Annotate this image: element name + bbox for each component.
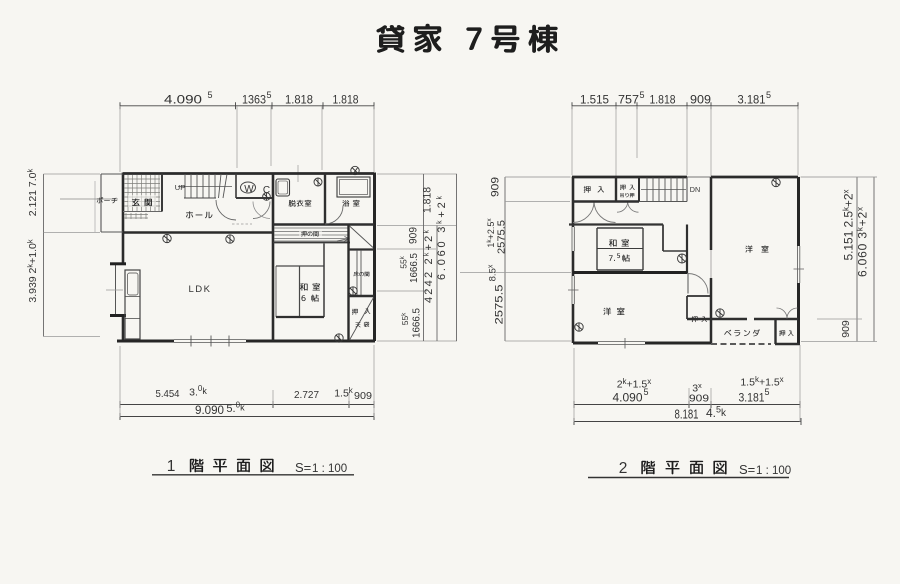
svg-text:909: 909 <box>690 93 711 107</box>
svg-text:1.818: 1.818 <box>422 187 434 213</box>
svg-text:1 : 100: 1 : 100 <box>312 463 347 475</box>
svg-text:5: 5 <box>266 90 271 100</box>
svg-text:3.939 2k+1.0k: 3.939 2k+1.0k <box>26 239 40 303</box>
svg-text:4.090: 4.090 <box>164 93 202 107</box>
svg-text:1.818: 1.818 <box>333 93 359 107</box>
svg-text:8.181: 8.181 <box>675 408 699 422</box>
svg-text:909: 909 <box>490 177 502 197</box>
svg-text:909: 909 <box>354 390 372 402</box>
svg-text:909: 909 <box>840 320 852 338</box>
svg-text:5: 5 <box>639 90 644 100</box>
svg-text:5.454: 5.454 <box>156 388 180 400</box>
svg-text:757: 757 <box>618 93 639 107</box>
svg-text:5: 5 <box>643 387 648 397</box>
svg-text:W: W <box>244 184 254 195</box>
svg-text:1.818: 1.818 <box>285 93 313 107</box>
svg-text:3.181: 3.181 <box>738 93 766 107</box>
svg-text:1.5k+1.5x: 1.5k+1.5x <box>740 375 783 389</box>
svg-text:909: 909 <box>408 227 420 244</box>
svg-text:2575.5: 2575.5 <box>494 285 506 325</box>
svg-text:5: 5 <box>766 90 771 100</box>
svg-text:1k+2.5x: 1k+2.5x <box>486 218 496 248</box>
svg-text:2.121 7.0k: 2.121 7.0k <box>26 168 40 216</box>
svg-text:1.818: 1.818 <box>650 93 676 107</box>
svg-text:DN: DN <box>690 185 700 194</box>
svg-text:4.090: 4.090 <box>613 391 643 405</box>
svg-text:6.060 3k+2x: 6.060 3k+2x <box>856 207 870 277</box>
svg-text:1666.5: 1666.5 <box>412 308 423 338</box>
svg-text:5: 5 <box>764 387 769 397</box>
svg-text:2575.5: 2575.5 <box>497 220 508 254</box>
svg-text:2.727: 2.727 <box>294 389 319 401</box>
svg-text:2: 2 <box>619 460 628 477</box>
svg-text:3.181: 3.181 <box>739 391 765 405</box>
svg-text:5: 5 <box>207 90 212 100</box>
svg-text:9.090: 9.090 <box>195 405 224 417</box>
svg-text:1666.5: 1666.5 <box>409 253 420 283</box>
svg-text:S=: S= <box>739 462 755 477</box>
svg-text:LDK: LDK <box>189 284 212 295</box>
svg-text:1.515: 1.515 <box>580 93 609 107</box>
svg-text:5.151 2.5k+2x: 5.151 2.5k+2x <box>842 190 856 261</box>
svg-text:1: 1 <box>167 458 176 475</box>
svg-text:S=: S= <box>295 460 311 475</box>
svg-text:UP: UP <box>175 183 185 192</box>
svg-text:1 : 100: 1 : 100 <box>756 465 791 477</box>
svg-text:909: 909 <box>689 393 709 405</box>
svg-text:1363: 1363 <box>242 93 266 107</box>
